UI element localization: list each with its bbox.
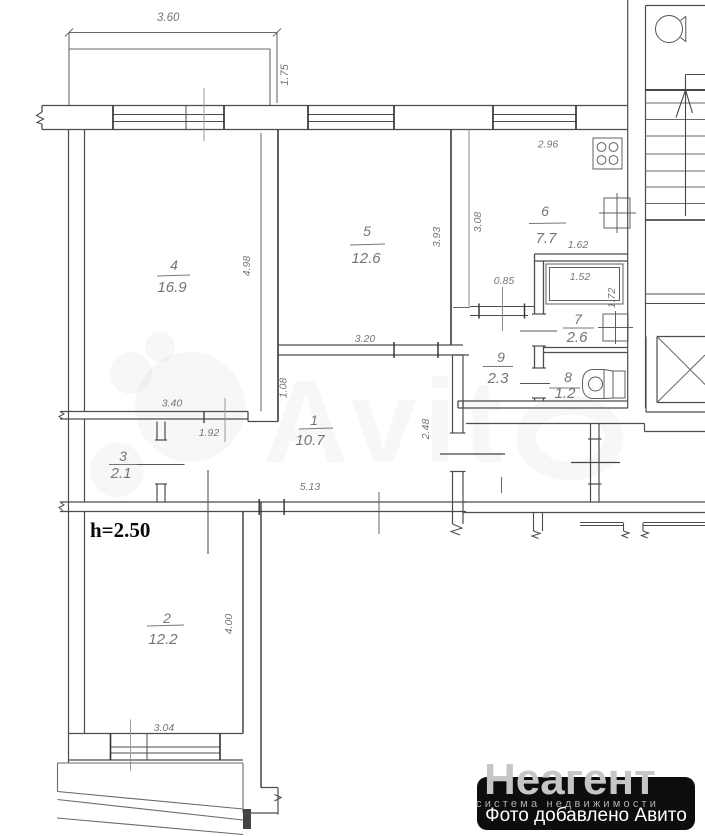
svg-text:3.08: 3.08 <box>472 212 484 233</box>
svg-text:1.62: 1.62 <box>568 239 589 251</box>
svg-text:3.04: 3.04 <box>154 722 175 734</box>
svg-text:Неагент: Неагент <box>484 755 656 804</box>
svg-text:5: 5 <box>363 223 371 239</box>
svg-text:3: 3 <box>119 448 127 464</box>
svg-text:8: 8 <box>564 369 572 385</box>
svg-text:1.92: 1.92 <box>199 427 220 439</box>
svg-text:2.1: 2.1 <box>110 465 132 482</box>
svg-text:5.13: 5.13 <box>300 481 321 493</box>
svg-text:4.00: 4.00 <box>223 614 235 635</box>
svg-text:10.7: 10.7 <box>295 432 325 449</box>
svg-text:Avit: Avit <box>263 356 510 488</box>
svg-text:9: 9 <box>497 349 505 365</box>
svg-text:Фото добавлено Авито: Фото добавлено Авито <box>485 805 687 826</box>
svg-text:16.9: 16.9 <box>157 279 187 296</box>
svg-text:3.60: 3.60 <box>157 12 180 24</box>
svg-text:4: 4 <box>170 257 178 273</box>
svg-text:6: 6 <box>541 203 549 219</box>
svg-text:12.2: 12.2 <box>148 631 178 648</box>
svg-text:1.72: 1.72 <box>606 288 618 309</box>
svg-text:12.6: 12.6 <box>351 250 381 267</box>
svg-text:2.3: 2.3 <box>487 370 510 387</box>
svg-text:1.08: 1.08 <box>278 378 290 399</box>
svg-text:2: 2 <box>162 610 171 626</box>
svg-text:0.85: 0.85 <box>494 275 515 287</box>
svg-text:h=2.50: h=2.50 <box>90 518 150 542</box>
svg-text:3.93: 3.93 <box>431 227 443 248</box>
svg-text:1.75: 1.75 <box>279 63 291 85</box>
svg-text:7: 7 <box>574 311 583 327</box>
svg-text:2.48: 2.48 <box>420 419 432 441</box>
svg-text:3.40: 3.40 <box>162 398 183 410</box>
svg-text:2.96: 2.96 <box>537 139 559 151</box>
svg-text:4.98: 4.98 <box>241 256 253 277</box>
svg-text:1.52: 1.52 <box>570 271 591 283</box>
svg-text:3.20: 3.20 <box>355 333 376 345</box>
svg-text:1: 1 <box>310 412 318 428</box>
svg-text:2.6: 2.6 <box>566 329 589 346</box>
svg-text:7.7: 7.7 <box>536 230 558 247</box>
